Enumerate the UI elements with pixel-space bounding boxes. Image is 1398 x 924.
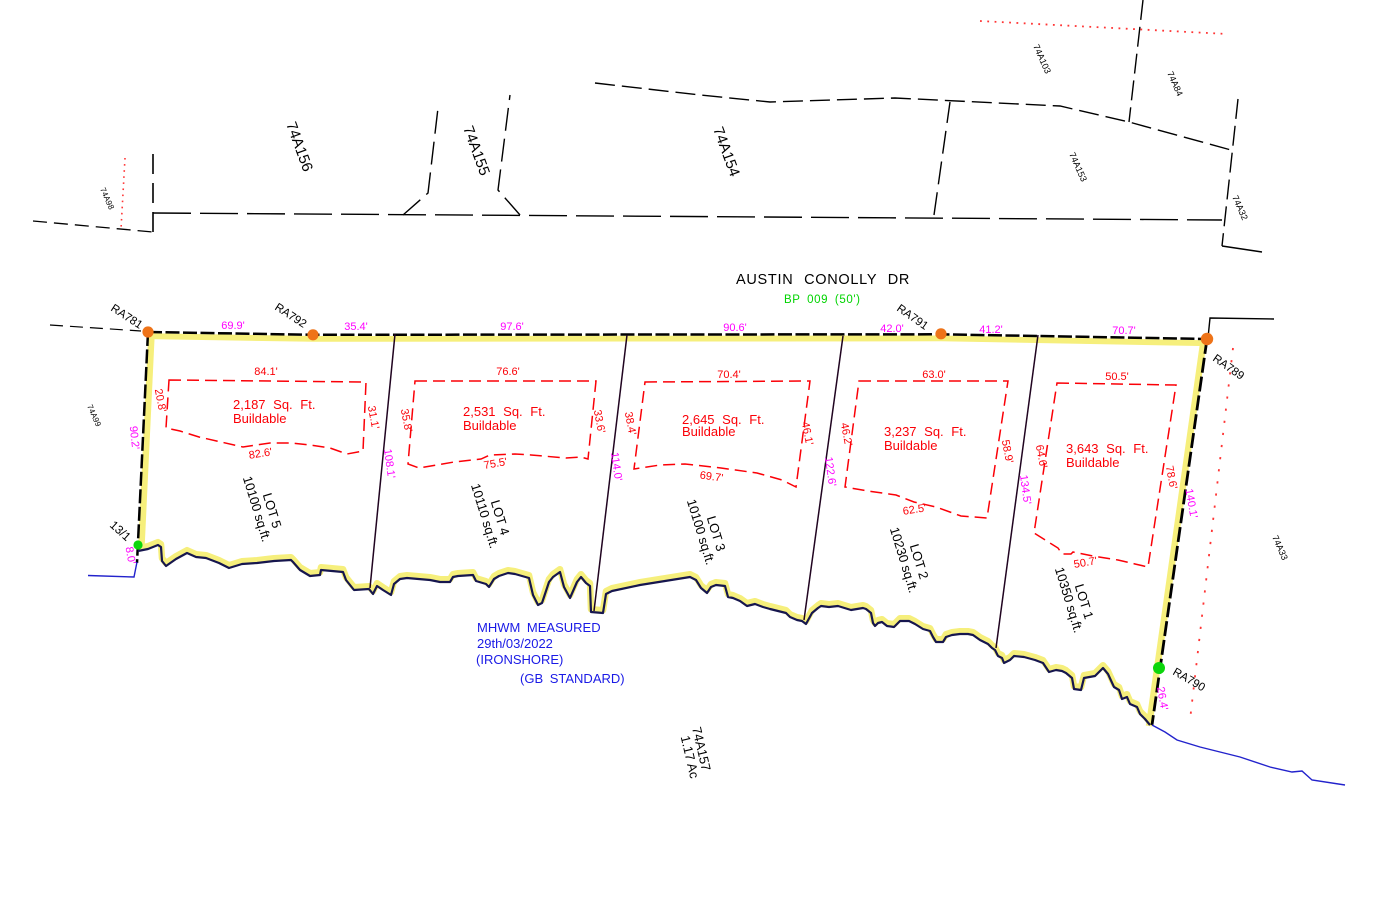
svg-text:3,237 Sq. Ft.: 3,237 Sq. Ft. — [884, 424, 966, 439]
svg-text:97.6': 97.6' — [500, 321, 524, 333]
svg-text:35.4': 35.4' — [344, 321, 368, 333]
svg-text:70.7': 70.7' — [1112, 325, 1136, 337]
svg-text:Buildable: Buildable — [682, 424, 736, 439]
svg-text:69.9': 69.9' — [221, 320, 245, 332]
svg-text:76.6': 76.6' — [496, 366, 520, 378]
svg-text:3,643 Sq. Ft.: 3,643 Sq. Ft. — [1066, 441, 1148, 456]
svg-text:42.0': 42.0' — [880, 323, 904, 335]
svg-text:2,187 Sq. Ft.: 2,187 Sq. Ft. — [233, 397, 315, 412]
svg-text:90.6': 90.6' — [723, 322, 747, 334]
svg-text:(IRONSHORE): (IRONSHORE) — [476, 652, 563, 667]
svg-text:84.1': 84.1' — [254, 366, 278, 378]
svg-text:41.2': 41.2' — [979, 324, 1003, 336]
svg-text:Buildable: Buildable — [463, 418, 517, 433]
svg-text:70.4': 70.4' — [717, 369, 741, 381]
svg-text:Buildable: Buildable — [1066, 455, 1120, 470]
svg-text:MHWM MEASURED: MHWM MEASURED — [477, 620, 601, 635]
svg-text:50.5': 50.5' — [1105, 371, 1129, 383]
svg-text:Buildable: Buildable — [233, 411, 287, 426]
svg-text:(GB STANDARD): (GB STANDARD) — [520, 671, 625, 686]
svg-text:63.0': 63.0' — [922, 369, 946, 381]
svg-text:AUSTIN CONOLLY DR: AUSTIN CONOLLY DR — [736, 272, 910, 288]
svg-text:29th/03/2022: 29th/03/2022 — [477, 636, 553, 651]
svg-text:Buildable: Buildable — [884, 438, 938, 453]
svg-text:90.2': 90.2' — [127, 425, 141, 450]
svg-text:2,531 Sq. Ft.: 2,531 Sq. Ft. — [463, 404, 545, 419]
svg-text:BP 009 (50'): BP 009 (50') — [784, 294, 861, 306]
